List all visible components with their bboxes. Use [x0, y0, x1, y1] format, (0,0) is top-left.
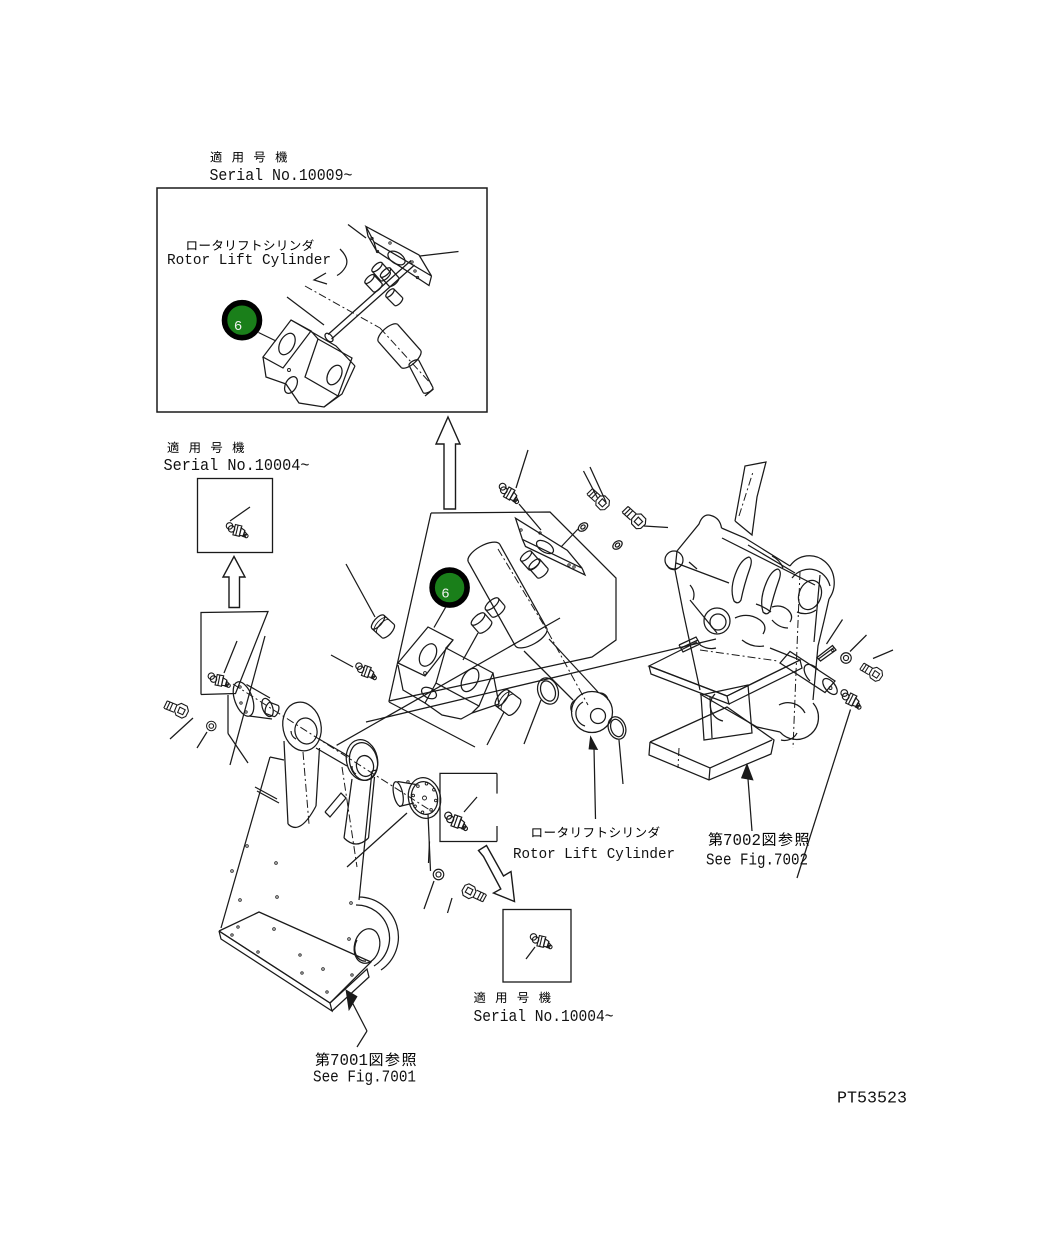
svg-text:See Fig.7002: See Fig.7002 [706, 851, 808, 870]
svg-text:6: 6 [234, 319, 242, 335]
svg-text:Serial No.10004~: Serial No.10004~ [164, 456, 310, 475]
svg-text:Serial No.10009~: Serial No.10009~ [210, 166, 353, 185]
svg-text:Serial No.10004~: Serial No.10004~ [474, 1007, 614, 1026]
svg-text:See Fig.7001: See Fig.7001 [313, 1068, 416, 1087]
svg-text:Rotor Lift Cylinder: Rotor Lift Cylinder [513, 845, 675, 863]
svg-text:7002: 7002 [723, 832, 761, 850]
svg-text:PT53523: PT53523 [837, 1089, 907, 1108]
svg-text:Rotor Lift Cylinder: Rotor Lift Cylinder [167, 251, 331, 269]
svg-text:6: 6 [441, 586, 449, 602]
